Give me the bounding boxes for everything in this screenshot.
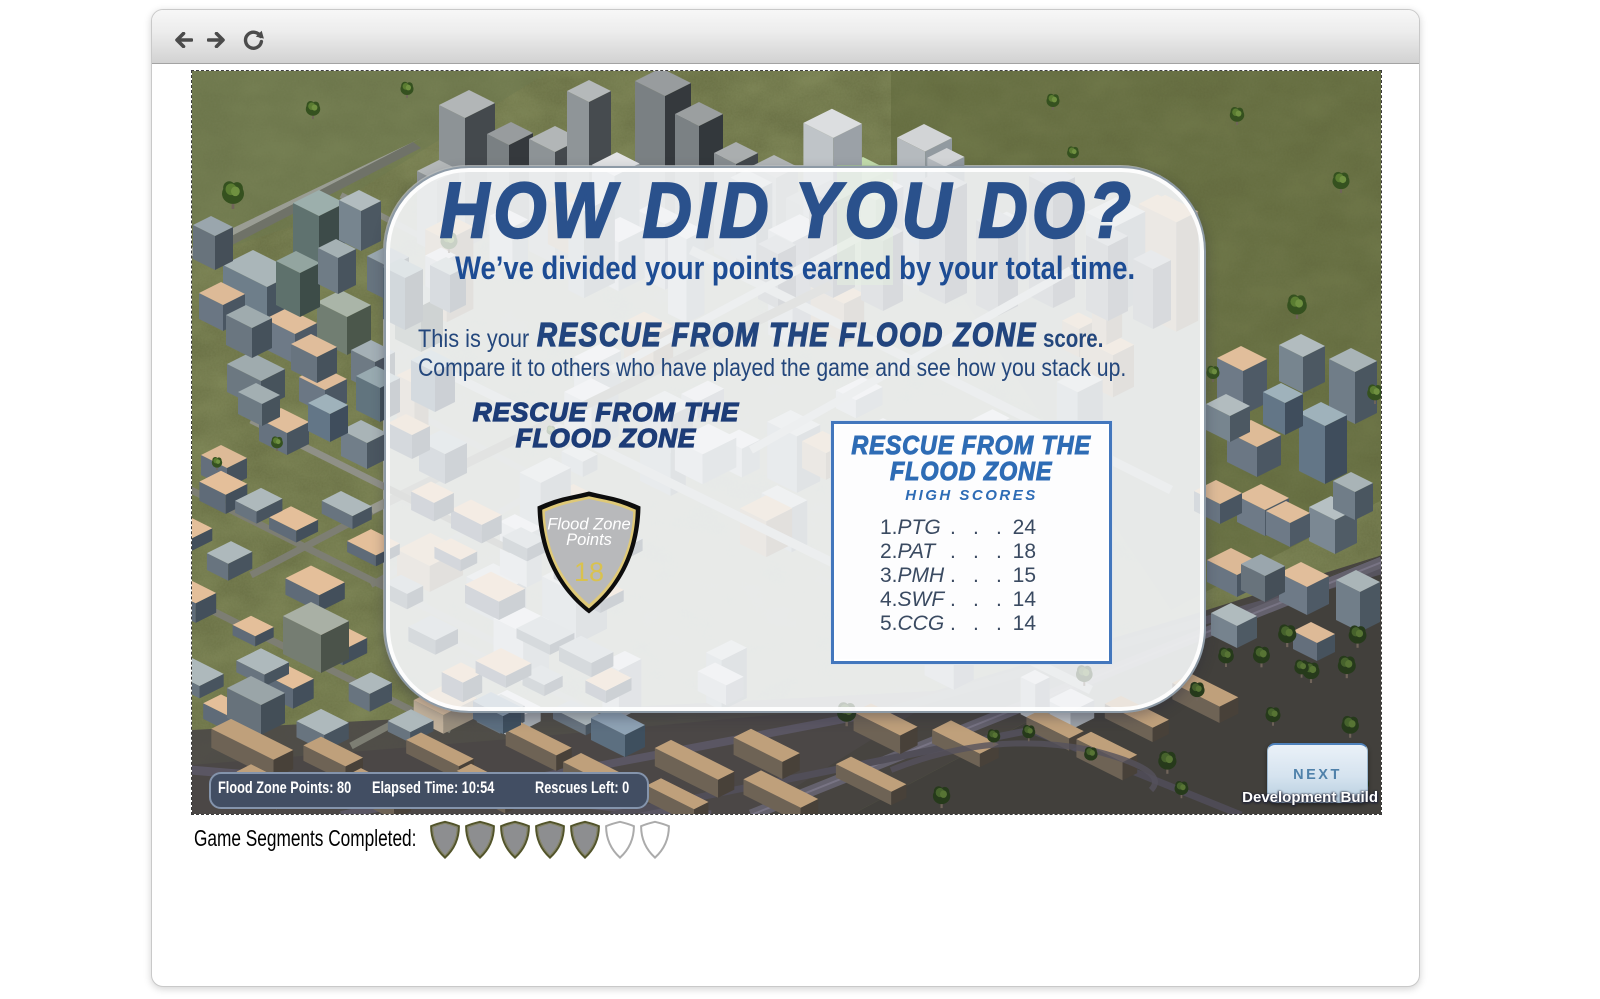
svg-text:18: 18 xyxy=(574,557,604,587)
svg-text:Points: Points xyxy=(566,531,612,549)
